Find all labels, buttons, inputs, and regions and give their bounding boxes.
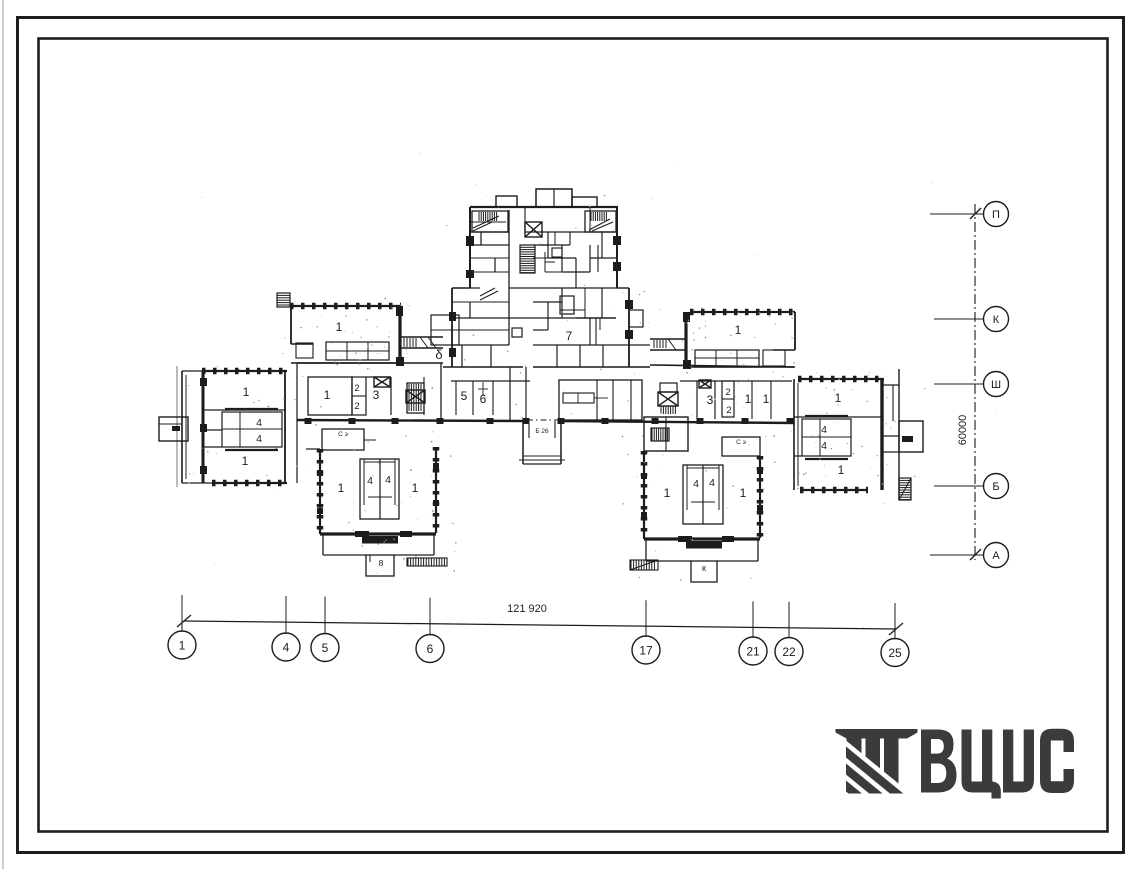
svg-text:3: 3 [373,388,380,402]
svg-text:2: 2 [725,387,730,398]
svg-text:5: 5 [322,641,329,655]
svg-text:С э: С э [736,439,747,446]
svg-text:4: 4 [709,477,715,489]
svg-text:к: к [702,563,706,573]
svg-text:1: 1 [336,320,343,334]
svg-text:4: 4 [256,433,262,445]
svg-text:Б 26: Б 26 [535,428,549,435]
svg-text:4: 4 [821,440,827,452]
svg-text:δ: δ [435,347,442,362]
svg-text:4: 4 [821,424,827,436]
svg-text:121 920: 121 920 [507,603,547,615]
svg-text:2: 2 [726,405,731,416]
svg-text:4: 4 [367,475,373,487]
svg-text:А: А [992,550,1000,562]
svg-text:1: 1 [735,323,742,337]
svg-text:1: 1 [835,391,842,405]
svg-text:25: 25 [888,646,902,660]
svg-text:2: 2 [354,401,359,412]
svg-text:1: 1 [243,385,250,399]
svg-text:1: 1 [838,463,845,477]
svg-text:5: 5 [461,389,468,403]
svg-text:60000: 60000 [957,415,969,446]
svg-text:1: 1 [664,486,671,500]
svg-text:4: 4 [385,474,391,486]
svg-text:1: 1 [179,638,186,652]
svg-text:4: 4 [693,478,699,490]
svg-text:1: 1 [763,392,770,406]
svg-text:С э: С э [338,431,349,438]
svg-text:17: 17 [639,643,653,657]
svg-text:1: 1 [324,388,331,402]
svg-text:К: К [993,314,1000,326]
svg-text:21: 21 [746,644,760,658]
svg-text:Б: Б [992,481,999,493]
svg-text:4: 4 [256,417,262,429]
svg-text:1: 1 [242,454,249,468]
svg-text:6: 6 [427,642,434,656]
svg-text:1: 1 [740,486,747,500]
svg-text:Ш: Ш [991,379,1001,391]
svg-text:3: 3 [707,393,714,407]
svg-text:1: 1 [412,481,419,495]
svg-text:2: 2 [354,383,359,394]
svg-text:8: 8 [379,558,384,568]
svg-text:1: 1 [745,392,752,406]
svg-text:22: 22 [782,645,796,659]
svg-text:7: 7 [566,329,573,343]
svg-text:П: П [992,209,1000,221]
svg-text:1: 1 [338,481,345,495]
svg-text:4: 4 [283,640,290,654]
